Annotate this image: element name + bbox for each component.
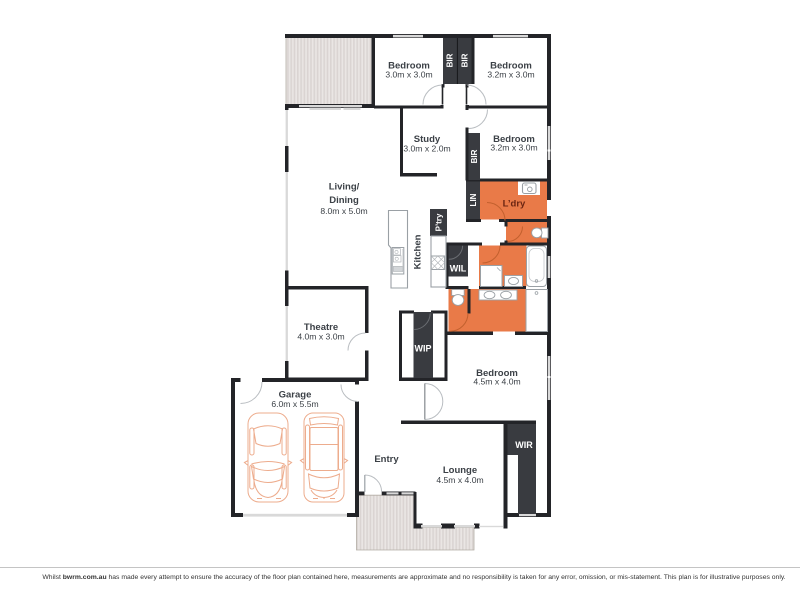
svg-text:WIR: WIR bbox=[515, 440, 533, 450]
svg-text:8.0m x 5.0m: 8.0m x 5.0m bbox=[320, 206, 367, 216]
svg-text:3.2m x 3.0m: 3.2m x 3.0m bbox=[487, 70, 534, 80]
svg-text:6.0m x 5.5m: 6.0m x 5.5m bbox=[271, 399, 318, 409]
svg-text:BIR: BIR bbox=[461, 53, 470, 67]
svg-text:Dining: Dining bbox=[329, 195, 359, 206]
svg-text:3.2m x 3.0m: 3.2m x 3.0m bbox=[490, 143, 537, 153]
svg-text:4.5m x 4.0m: 4.5m x 4.0m bbox=[473, 377, 520, 387]
svg-text:BIR: BIR bbox=[446, 53, 455, 67]
svg-text:WIL: WIL bbox=[450, 264, 467, 274]
svg-text:LIN: LIN bbox=[469, 193, 478, 206]
svg-text:4.0m x 3.0m: 4.0m x 3.0m bbox=[297, 332, 344, 342]
svg-text:3.0m x 2.0m: 3.0m x 2.0m bbox=[403, 144, 450, 154]
svg-text:3.0m x 3.0m: 3.0m x 3.0m bbox=[385, 70, 432, 80]
svg-text:Kitchen: Kitchen bbox=[413, 234, 424, 269]
svg-text:4.5m x 4.0m: 4.5m x 4.0m bbox=[436, 475, 483, 485]
svg-text:P’try: P’try bbox=[434, 213, 443, 231]
svg-text:WIP: WIP bbox=[415, 344, 432, 354]
svg-text:Living/: Living/ bbox=[329, 182, 360, 193]
svg-text:BIR: BIR bbox=[470, 149, 479, 163]
svg-text:L’dry: L’dry bbox=[503, 199, 526, 210]
svg-text:Entry: Entry bbox=[374, 454, 399, 465]
